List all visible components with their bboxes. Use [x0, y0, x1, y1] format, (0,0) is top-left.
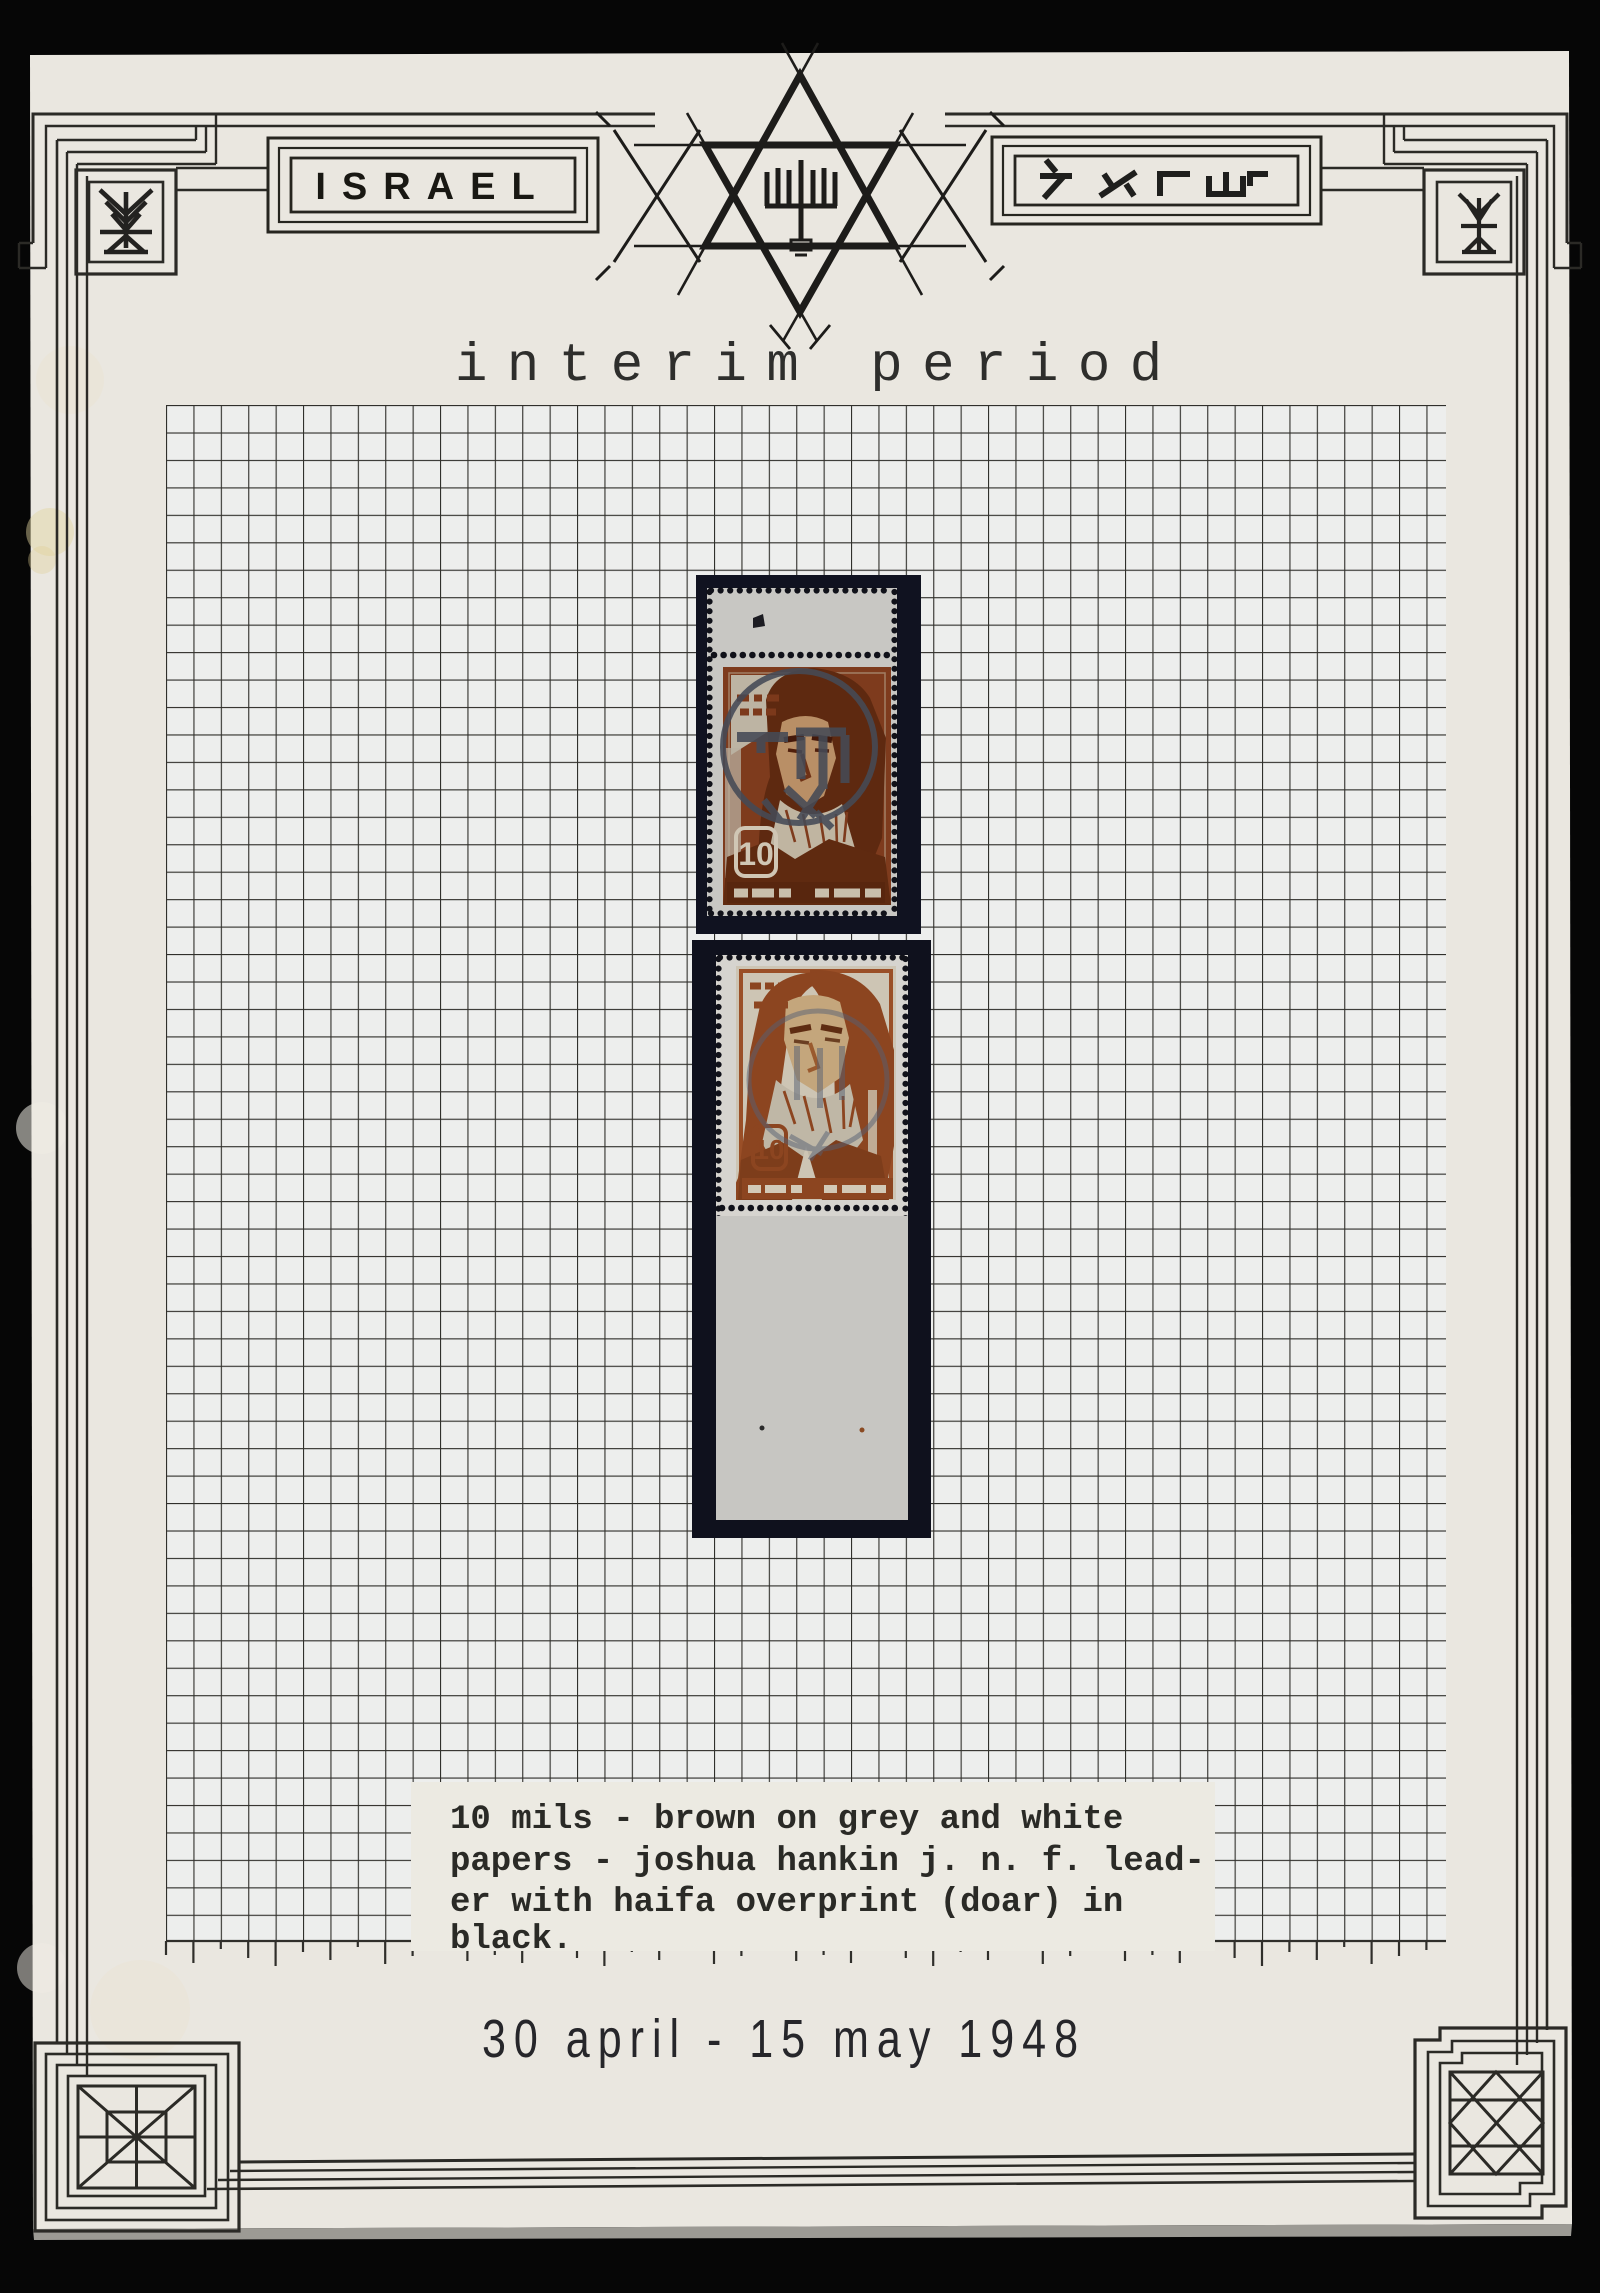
- svg-text:ISRAEL: ISRAEL: [315, 166, 550, 208]
- svg-text:papers - joshua hankin j. n. f: papers - joshua hankin j. n. f. lead-: [450, 1843, 1205, 1881]
- svg-text:30 april - 15 may 1948: 30 april - 15 may 1948: [482, 2009, 1086, 2069]
- svg-text:10: 10: [738, 836, 774, 872]
- svg-text:interim period: interim period: [455, 336, 1182, 397]
- svg-text:er with haifa overprint (doar): er with haifa overprint (doar) in: [450, 1884, 1123, 1922]
- svg-text:10 mils - brown on grey and wh: 10 mils - brown on grey and white: [450, 1801, 1123, 1839]
- svg-text:black.: black.: [450, 1921, 572, 1959]
